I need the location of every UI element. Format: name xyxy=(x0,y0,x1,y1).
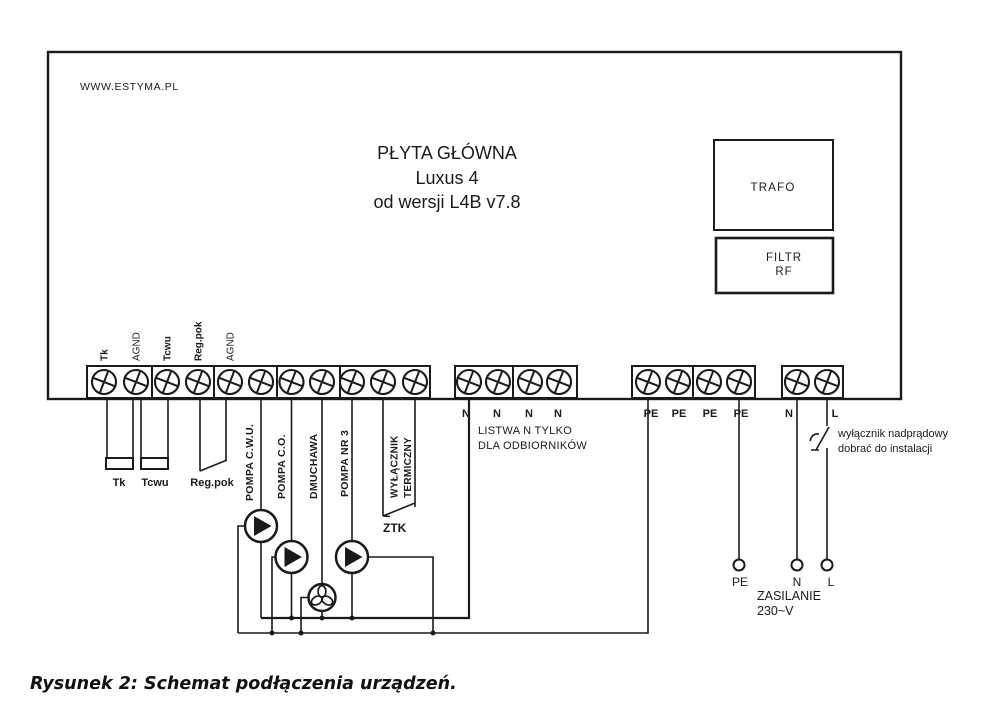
supply-terminals: PE N L ZASILANIE 230~V xyxy=(732,560,835,619)
output-label-pompa-nr3: POMPA NR 3 xyxy=(339,430,351,497)
tk-sensor-resistor-icon xyxy=(106,458,133,469)
pe-terminal-strip xyxy=(632,366,755,398)
supply-name-label: ZASILANIE xyxy=(757,589,821,603)
pump-co-icon xyxy=(276,541,308,573)
trafo-box: TRAFO xyxy=(714,140,833,230)
pump-co-pe-wire xyxy=(272,557,276,633)
neutral-label-4: N xyxy=(554,408,562,420)
supply-n-label: N xyxy=(793,575,802,589)
filtr-label-line1: FILTR xyxy=(766,252,802,264)
pe-label-3: PE xyxy=(703,408,718,420)
output-label-pompa-co: POMPA C.O. xyxy=(276,434,288,499)
tk-sensor-wires xyxy=(107,399,133,458)
tcwu-sensor-label: Tcwu xyxy=(141,477,168,489)
terminal-label-tk: Tk xyxy=(100,349,111,361)
pe-label-4: PE xyxy=(734,408,749,420)
terminal-label-agnd1: AGND xyxy=(132,332,143,361)
title-line2: Luxus 4 xyxy=(415,168,478,188)
tcwu-sensor-wires xyxy=(141,399,168,458)
supply-pe-terminal-icon xyxy=(734,560,745,571)
breaker-note-line1: wyłącznik nadprądowy xyxy=(837,428,949,440)
mains-l-label: L xyxy=(832,408,839,420)
filtr-label-line2: RF xyxy=(775,266,792,278)
figure-caption: Rysunek 2: Schemat podłączenia urządzeń. xyxy=(30,674,457,694)
left-terminal-strip xyxy=(87,366,430,398)
output-label-thermal-line2: TERMICZNY xyxy=(403,437,414,498)
breaker-note-line2: dobrać do instalacji xyxy=(838,443,932,455)
ztk-label: ZTK xyxy=(383,521,407,535)
filtr-rf-box: FILTR RF xyxy=(716,238,833,293)
neutral-terminal-strip xyxy=(454,366,577,398)
pe-bus-wire xyxy=(238,399,648,633)
fan-icon xyxy=(309,584,336,611)
supply-l-terminal-icon xyxy=(822,560,833,571)
pe-strip-labels: PE PE PE PE xyxy=(644,408,749,420)
pump-nr3-icon xyxy=(336,541,368,573)
output-label-thermal-line1: WYŁĄCZNIK xyxy=(390,435,401,498)
title-line3: od wersji L4B v7.8 xyxy=(373,192,520,212)
terminal-label-tcwu: Tcwu xyxy=(163,336,174,361)
tk-sensor-label: Tk xyxy=(113,477,127,489)
wiring-diagram: WWW.ESTYMA.PL PŁYTA GŁÓWNA Luxus 4 od we… xyxy=(0,0,1000,714)
output-label-dmuchawa: DMUCHAWA xyxy=(308,433,320,499)
regpok-switch-icon xyxy=(200,399,227,471)
mains-terminal-strip xyxy=(782,366,843,398)
supply-pe-label: PE xyxy=(732,575,748,589)
pump-cwu-icon xyxy=(245,510,277,542)
output-label-pompa-cwu: POMPA C.W.U. xyxy=(244,424,256,501)
wiring xyxy=(106,399,829,636)
pump-nr3-pe-wire xyxy=(368,557,433,633)
document-page: WWW.ESTYMA.PL PŁYTA GŁÓWNA Luxus 4 od we… xyxy=(0,0,1000,714)
supply-voltage-label: 230~V xyxy=(757,604,794,618)
supply-l-label: L xyxy=(828,575,835,589)
neutral-label-1: N xyxy=(462,408,470,420)
neutral-note-line1: LISTWA N TYLKO xyxy=(478,425,572,437)
trafo-label: TRAFO xyxy=(751,182,796,194)
terminal-label-regpok: Reg.pok xyxy=(194,321,205,361)
overcurrent-breaker-icon xyxy=(810,427,829,450)
tcwu-sensor-resistor-icon xyxy=(141,458,168,469)
website-label: WWW.ESTYMA.PL xyxy=(80,81,179,93)
neutral-note-line2: DLA ODBIORNIKÓW xyxy=(478,439,587,452)
mains-n-label: N xyxy=(785,408,793,420)
pe-label-2: PE xyxy=(672,408,687,420)
title-line1: PŁYTA GŁÓWNA xyxy=(377,142,517,163)
neutral-label-2: N xyxy=(493,408,501,420)
output-labels: POMPA C.W.U. POMPA C.O. DMUCHAWA POMPA N… xyxy=(244,424,414,501)
supply-n-terminal-icon xyxy=(792,560,803,571)
pe-label-1: PE xyxy=(644,408,659,420)
neutral-strip-labels: N N N N xyxy=(462,408,562,420)
neutral-label-3: N xyxy=(525,408,533,420)
regpok-switch-label: Reg.pok xyxy=(190,477,234,489)
terminal-label-agnd2: AGND xyxy=(226,332,237,361)
fan-pe-wire xyxy=(301,598,309,634)
pump-cwu-pe-wire xyxy=(238,526,246,633)
